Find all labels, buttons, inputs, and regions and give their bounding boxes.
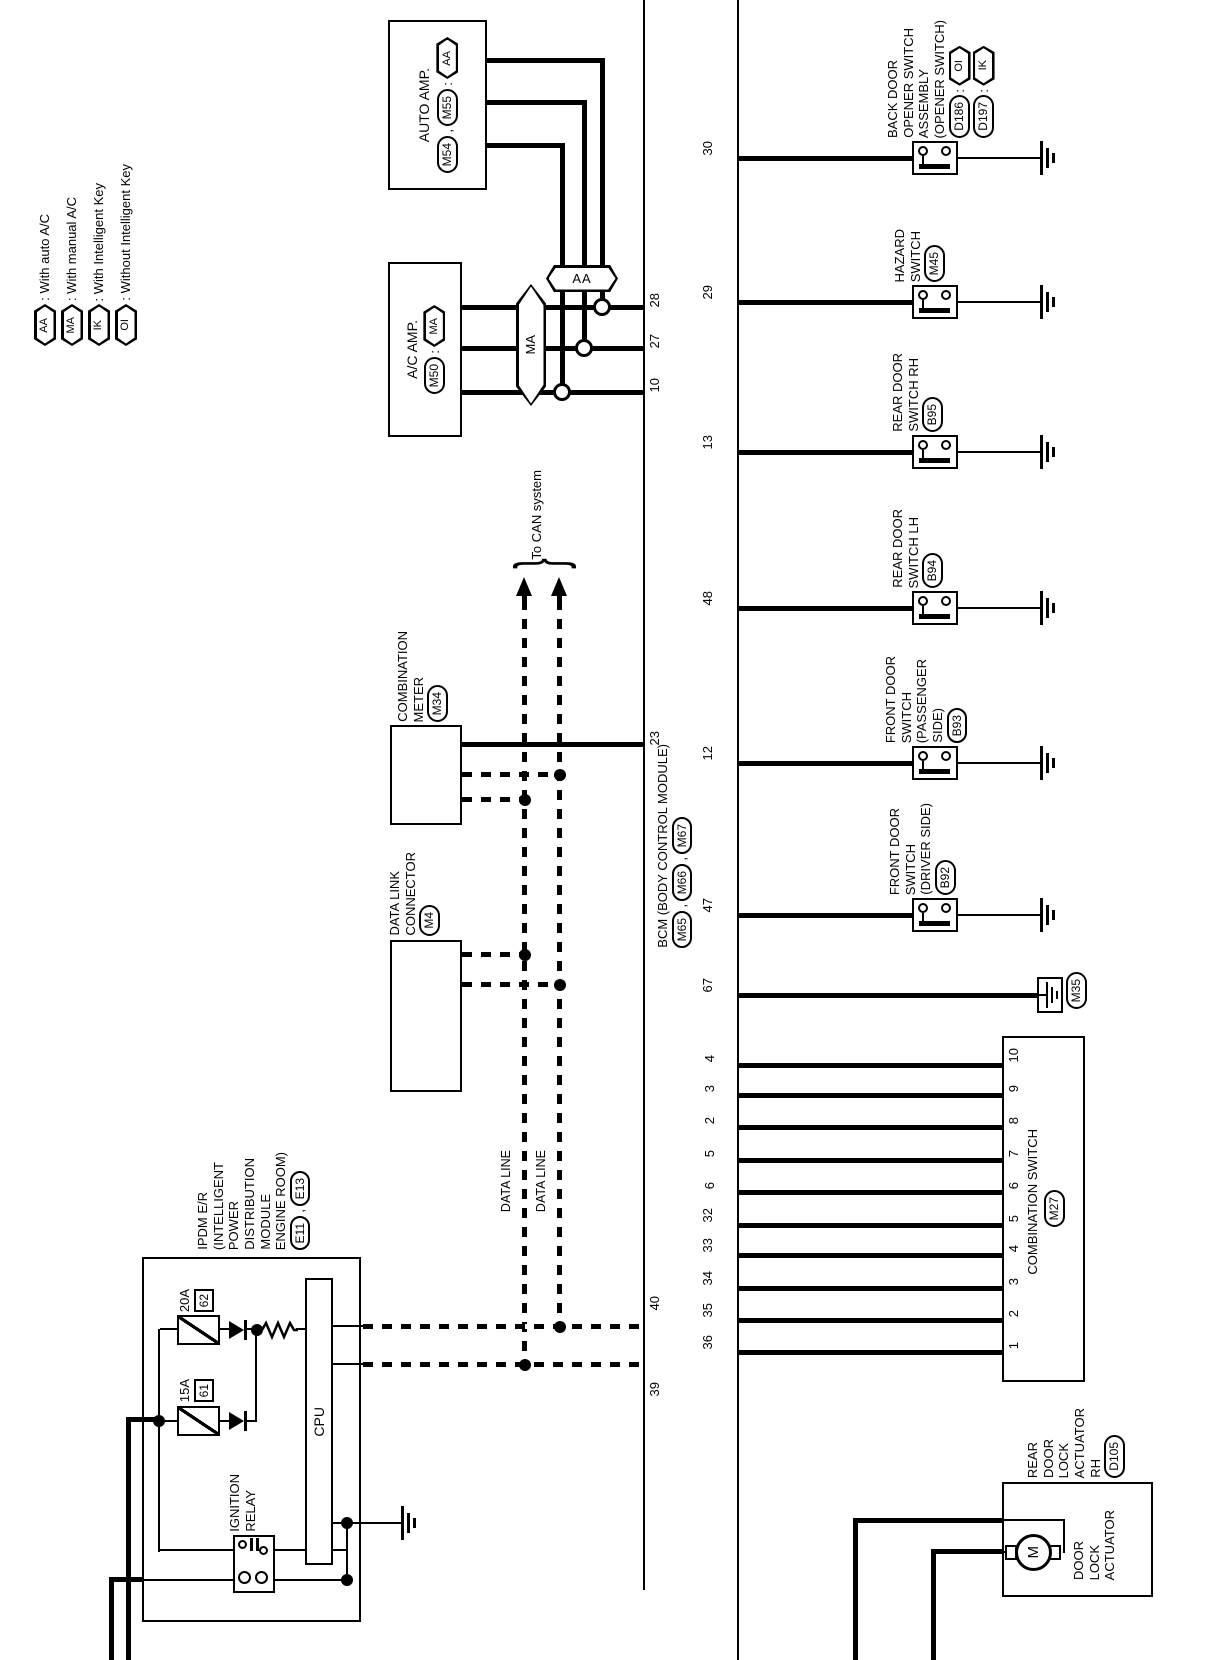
- wiring-diagram-page: AA: With auto A/C MA: With manual A/C IK…: [0, 0, 1216, 1660]
- wire: [931, 1549, 936, 1660]
- relay-contact: [259, 1546, 268, 1555]
- fuse: [177, 1315, 220, 1345]
- wire: [737, 156, 912, 161]
- switch-lever: [919, 614, 950, 619]
- connector-pill-m4: M4: [419, 905, 440, 936]
- wire: [158, 1329, 160, 1552]
- wire: [333, 1363, 365, 1365]
- wire: [255, 1330, 257, 1421]
- ground-icon: [1046, 598, 1049, 618]
- junction-dot: [341, 1574, 353, 1586]
- pin-label: 10: [648, 378, 662, 392]
- pin-label: 2: [703, 1117, 717, 1124]
- wire: [275, 1579, 346, 1581]
- wire: [487, 143, 565, 148]
- ground-icon: [1046, 148, 1049, 168]
- wire: [931, 1549, 1004, 1554]
- diode-icon: [229, 1412, 244, 1430]
- bcm-line-left: [643, 0, 645, 1590]
- ma-bus-tag: MA: [516, 284, 546, 406]
- wire: [853, 1518, 858, 1660]
- ground-icon: [1046, 905, 1049, 925]
- cs-pin-label: 3: [1007, 1278, 1021, 1285]
- aa-bus-tag: AA: [546, 265, 618, 292]
- ground-icon: [1052, 910, 1055, 920]
- battery-wire: [109, 1577, 143, 1582]
- cs-pin-label: 1: [1007, 1342, 1021, 1349]
- switch-terminal: [918, 903, 928, 913]
- connector-pill-m50: M50: [424, 357, 445, 394]
- wire: [737, 1158, 1002, 1163]
- pin-label: 40: [648, 1296, 662, 1310]
- wire: [143, 1579, 233, 1581]
- wire: [737, 1350, 1002, 1355]
- ground-icon: [1040, 591, 1043, 625]
- ipdm-label: IPDM E/R (INTELLIGENT POWER DISTRIBUTION…: [196, 1152, 310, 1250]
- connector-pill-m27: M27: [1044, 1190, 1065, 1227]
- wire-dashed: [462, 772, 562, 777]
- can-data-line-2: [557, 600, 562, 1329]
- wire: [737, 761, 912, 766]
- wire-dashed: [363, 1324, 643, 1329]
- ground-icon: [1040, 435, 1043, 469]
- legend-text: : With manual A/C: [65, 197, 79, 301]
- pin-label: 48: [701, 591, 715, 605]
- fuse-number-box: 61: [194, 1379, 215, 1402]
- switch-lever: [922, 450, 924, 458]
- fuse-number-box: 62: [194, 1289, 215, 1312]
- brace: }: [508, 550, 574, 576]
- aa-hex-tag: AA: [436, 37, 458, 79]
- cs-pin-label: 5: [1007, 1215, 1021, 1222]
- switch-terminal: [918, 440, 928, 450]
- open-joint: [553, 383, 571, 401]
- legend-item: OI: Without Intelligent Key: [115, 164, 137, 346]
- ground-icon: [413, 1518, 416, 1528]
- wire: [160, 1328, 177, 1330]
- wire: [737, 1223, 1002, 1228]
- pin-label: 3: [703, 1085, 717, 1092]
- switch-terminal: [941, 440, 951, 450]
- front-door-switch-passenger-label: FRONT DOOR SWITCH (PASSENGER SIDE) B93: [884, 656, 967, 743]
- connector-pill-b93: B93: [947, 708, 968, 743]
- cs-pin-label: 2: [1007, 1310, 1021, 1317]
- to-can-label: To CAN system: [530, 470, 544, 560]
- wire: [462, 346, 643, 351]
- switch-terminal: [941, 596, 951, 606]
- pin-label: 32: [701, 1208, 715, 1222]
- ground-icon: [1040, 746, 1043, 780]
- ac-amp-box: A/C AMP. M50 : MA: [388, 262, 462, 437]
- pin-label: 36: [701, 1335, 715, 1349]
- ground-icon: [1051, 987, 1053, 1003]
- legend-text: : Without Intelligent Key: [119, 164, 133, 301]
- resistor-icon: [258, 1320, 298, 1340]
- ground-icon: [1046, 292, 1049, 312]
- motor-icon: M: [1015, 1534, 1052, 1571]
- ma-hex-tag: MA: [61, 304, 83, 346]
- switch-terminal: [941, 146, 951, 156]
- legend-item: MA: With manual A/C: [61, 197, 83, 346]
- connector-pill-m55: M55: [437, 89, 458, 126]
- junction-dot: [554, 1321, 566, 1333]
- fuse1-label: 20A 62: [178, 1289, 214, 1312]
- pin-label: 30: [701, 141, 715, 155]
- bcm-title: BCM (BODY CONTROL MODULE): [656, 744, 670, 948]
- junction-dot: [251, 1324, 263, 1336]
- relay-bar: [250, 1538, 253, 1551]
- relay-coil: [238, 1571, 251, 1584]
- connector-pill-d105: D105: [1104, 1435, 1125, 1478]
- wire: [296, 1328, 305, 1330]
- cs-pin-label: 6: [1007, 1182, 1021, 1189]
- switch-lever: [919, 921, 950, 926]
- wire: [737, 450, 912, 455]
- ma-hex-tag: MA: [423, 305, 445, 347]
- connector-pill-b95: B95: [922, 397, 943, 432]
- wire: [737, 993, 1037, 998]
- connector-pill-e13: E13: [290, 1171, 311, 1206]
- wire: [487, 100, 587, 105]
- rear-door-switch-lh-label: REAR DOOR SWITCH LH B94: [891, 509, 943, 588]
- ignition-relay-label: IGNITION RELAY: [228, 1474, 257, 1532]
- wire: [737, 1318, 1002, 1323]
- rear-door-switch-rh-label: REAR DOOR SWITCH RH B95: [891, 353, 943, 432]
- wire: [737, 1125, 1002, 1130]
- connector-pill-m65: M65: [672, 911, 693, 948]
- wire: [159, 1549, 233, 1551]
- aa-hex-tag: AA: [34, 304, 56, 346]
- back-door-opener-label: BACK DOOR OPENER SWITCH ASSEMBLY (OPENER…: [886, 20, 995, 138]
- connector-pill-m66: M66: [672, 864, 693, 901]
- fuse: [177, 1406, 220, 1436]
- legend-item: AA: With auto A/C: [34, 214, 56, 346]
- wire: [1063, 1519, 1065, 1553]
- junction-dot: [519, 794, 531, 806]
- legend-text: : With Intelligent Key: [92, 183, 106, 302]
- bcm-line-right: [737, 0, 739, 1660]
- connector-pill-d186: D186: [949, 95, 970, 138]
- junction-dot: [554, 979, 566, 991]
- wire: [487, 58, 605, 63]
- relay-coil: [255, 1571, 268, 1584]
- cs-pin-label: 8: [1007, 1117, 1021, 1124]
- wire: [462, 742, 643, 747]
- connector-pill-m34: M34: [427, 685, 448, 722]
- pin-label: 39: [648, 1382, 662, 1396]
- wire: [958, 451, 1040, 453]
- pin-label: 47: [701, 898, 715, 912]
- switch-lever: [922, 300, 924, 308]
- ik-hex-tag: IK: [973, 46, 995, 86]
- wire: [737, 1286, 1002, 1291]
- connector-pill-m54: M54: [437, 136, 458, 173]
- wire: [462, 305, 643, 310]
- ground-icon: [401, 1506, 404, 1540]
- pin-label: 67: [701, 978, 715, 992]
- ground-icon: [407, 1513, 410, 1533]
- combination-meter-label: COMBINATION METER M34: [396, 631, 448, 722]
- switch-lever: [919, 308, 950, 313]
- door-lock-actuator-inner-label: DOOR LOCK ACTUATOR: [1072, 1510, 1117, 1580]
- wire: [737, 300, 912, 305]
- ground-icon: [1046, 982, 1048, 1008]
- ground-icon: [1040, 141, 1043, 175]
- junction-dot: [554, 769, 566, 781]
- connector-pill-d197: D197: [973, 95, 994, 138]
- open-joint: [593, 298, 611, 316]
- pin-label: 6: [703, 1182, 717, 1189]
- cs-pin-label: 4: [1007, 1245, 1021, 1252]
- switch-lever: [919, 769, 950, 774]
- diode-icon: [229, 1321, 244, 1339]
- hazard-switch-label: HAZARD SWITCH M45: [893, 229, 945, 282]
- junction-dot: [153, 1415, 165, 1427]
- pin-label: 29: [701, 285, 715, 299]
- switch-terminal: [918, 146, 928, 156]
- dlc-label: DATA LINK CONNECTOR M4: [388, 852, 440, 936]
- data-line-label: DATA LINE: [500, 1150, 513, 1212]
- auto-amp-title: AUTO AMP.: [417, 68, 432, 142]
- wire: [958, 762, 1040, 764]
- ground-icon: [1040, 898, 1043, 932]
- open-joint: [575, 339, 593, 357]
- switch-terminal: [941, 903, 951, 913]
- relay-contact: [238, 1540, 247, 1549]
- switch-terminal: [941, 290, 951, 300]
- cs-pin-label: 9: [1007, 1085, 1021, 1092]
- dlc-box: [390, 940, 462, 1092]
- cpu-box: CPU: [305, 1278, 333, 1565]
- switch-lever: [922, 913, 924, 921]
- cs-pin-label: 10: [1007, 1048, 1021, 1062]
- switch-lever: [919, 164, 950, 169]
- combination-switch-title: COMBINATION SWITCH: [1026, 1129, 1040, 1275]
- oi-hex-tag: OI: [949, 46, 971, 86]
- pin-label: 23: [648, 731, 662, 745]
- legend-item: IK: With Intelligent Key: [88, 183, 110, 347]
- wire: [333, 1325, 365, 1327]
- switch-terminal: [941, 751, 951, 761]
- ground-icon: [1046, 442, 1049, 462]
- switch-terminal: [918, 596, 928, 606]
- ground-icon: [1052, 603, 1055, 613]
- wire: [737, 1190, 1002, 1195]
- connector-pill-e11: E11: [290, 1216, 311, 1250]
- connector-pill-b92: B92: [935, 860, 956, 895]
- ground-icon: [1052, 297, 1055, 307]
- oi-hex-tag: OI: [115, 304, 137, 346]
- wire: [958, 914, 1040, 916]
- front-door-switch-driver-label: FRONT DOOR SWITCH (DRIVER SIDE) B92: [888, 803, 956, 895]
- wire: [853, 1518, 1004, 1523]
- battery-wire: [109, 1581, 114, 1660]
- ground-icon: [1046, 753, 1049, 773]
- wire: [247, 1420, 257, 1422]
- switch-terminal: [918, 290, 928, 300]
- wire: [220, 1420, 229, 1422]
- ground-icon: [1052, 758, 1055, 768]
- junction-dot: [341, 1517, 353, 1529]
- pin-label: 35: [701, 1303, 715, 1317]
- pin-label: 4: [703, 1055, 717, 1062]
- wire: [737, 1253, 1002, 1258]
- switch-lever: [922, 761, 924, 769]
- pin-label: 12: [701, 746, 715, 760]
- junction-dot: [519, 1359, 531, 1371]
- pin-label: 13: [701, 435, 715, 449]
- wire-dashed: [363, 1362, 643, 1367]
- connector-pill-m45: M45: [924, 245, 945, 282]
- pin-label: 33: [701, 1238, 715, 1252]
- connector-pill-m35: M35: [1066, 972, 1087, 1009]
- wire: [958, 301, 1040, 303]
- pin-label: 28: [648, 293, 662, 307]
- wire: [737, 606, 912, 611]
- connector-pill-b94: B94: [922, 553, 943, 588]
- wire: [737, 1093, 1002, 1098]
- pin-label: 34: [701, 1271, 715, 1285]
- auto-amp-box: AUTO AMP. M54 , M55 : AA: [388, 20, 487, 190]
- wire: [737, 1063, 1002, 1068]
- wire-dashed: [462, 797, 527, 802]
- bcm-label: BCM (BODY CONTROL MODULE) M65 , M66 , M6…: [656, 744, 692, 948]
- ground-icon: [1052, 153, 1055, 163]
- wire-dashed: [462, 952, 527, 957]
- data-line-label: DATA LINE: [535, 1150, 548, 1212]
- relay-bar: [256, 1538, 259, 1551]
- switch-lever: [922, 606, 924, 614]
- diode-bar: [244, 1320, 247, 1340]
- wire: [1002, 1519, 1065, 1521]
- switch-lever: [919, 458, 950, 463]
- wire: [220, 1328, 229, 1330]
- wire: [958, 607, 1040, 609]
- wire: [958, 157, 1040, 159]
- switch-lever: [922, 156, 924, 164]
- legend-text: : With auto A/C: [38, 214, 52, 301]
- pin-label: 5: [703, 1150, 717, 1157]
- cs-pin-label: 7: [1007, 1150, 1021, 1157]
- ac-amp-title: A/C AMP.: [405, 320, 420, 379]
- junction-dot: [519, 949, 531, 961]
- wire: [737, 913, 912, 918]
- pin-label: 27: [648, 334, 662, 348]
- switch-terminal: [918, 751, 928, 761]
- ground-icon: [1052, 447, 1055, 457]
- combination-meter-box: [390, 725, 462, 825]
- ground-icon: [1040, 285, 1043, 319]
- connector-pill-m67: M67: [672, 817, 693, 854]
- battery-wire: [126, 1419, 131, 1660]
- ground-icon: [1056, 991, 1058, 999]
- fuse2-label: 15A 61: [178, 1379, 214, 1402]
- rear-door-lock-actuator-label: REAR DOOR LOCK ACTUATOR RH D105: [1026, 1408, 1125, 1478]
- wire-dashed: [462, 982, 562, 987]
- ik-hex-tag: IK: [88, 304, 110, 346]
- wire: [582, 100, 587, 348]
